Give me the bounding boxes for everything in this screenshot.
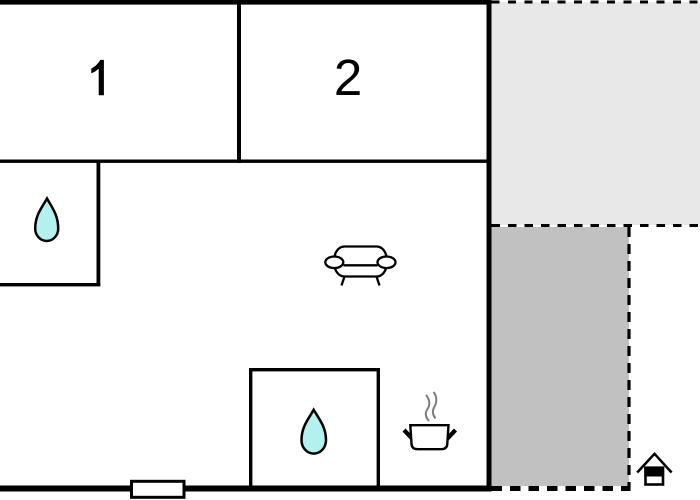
svg-text:2: 2 bbox=[334, 49, 362, 106]
